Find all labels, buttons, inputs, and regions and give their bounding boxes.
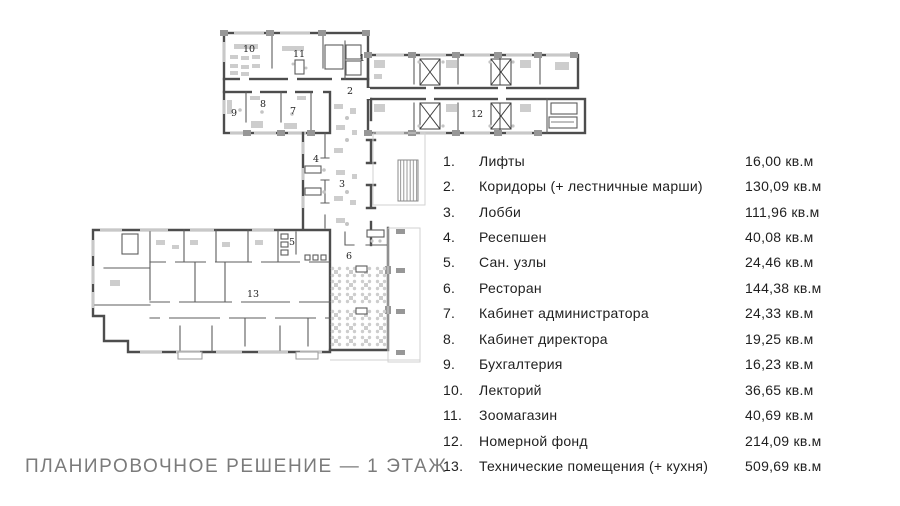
room-label-10: 10 [243,44,255,55]
page-title: ПЛАНИРОВОЧНОЕ РЕШЕНИЕ — 1 ЭТАЖ [25,456,447,478]
legend-item-number: 13. [443,458,479,474]
legend-item-area: 16,00 кв.м [745,153,843,169]
terrace [330,228,420,362]
room-label-5: 5 [289,237,295,248]
legend-item-area: 509,69 кв.м [745,458,843,474]
room-label-6: 6 [346,251,352,262]
legend-item: 2. Коридоры (+ лестничные марши) 130,09 … [443,173,843,198]
technical-block [93,230,330,359]
legend-item-area: 24,46 кв.м [745,254,843,270]
room-label-13: 13 [247,289,259,300]
legend-item-number: 4. [443,229,479,245]
legend-item: 7. Кабинет администратора 24,33 кв.м [443,301,843,326]
legend-item-label: Сан. узлы [479,254,745,270]
legend-item-area: 40,08 кв.м [745,229,843,245]
legend-item-number: 3. [443,204,479,220]
legend-item-number: 7. [443,305,479,321]
legend-item-number: 2. [443,178,479,194]
legend-item-number: 6. [443,280,479,296]
legend-item: 9. Бухгалтерия 16,23 кв.м [443,352,843,377]
restaurant-area [330,228,391,350]
legend-item-area: 36,65 кв.м [745,382,843,398]
room-label-12: 12 [471,109,483,120]
legend-item-area: 24,33 кв.м [745,305,843,321]
legend-item-area: 19,25 кв.м [745,331,843,347]
legend-item: 5. Сан. узлы 24,46 кв.м [443,250,843,275]
legend-item-area: 40,69 кв.м [745,407,843,423]
legend-item: 1. Лифты 16,00 кв.м [443,148,843,173]
legend-item-number: 1. [443,153,479,169]
room-label-9: 9 [231,108,237,119]
area-legend: 1. Лифты 16,00 кв.м 2. Коридоры (+ лестн… [443,148,843,479]
legend-item: 13. Технические помещения (+ кухня) 509,… [443,453,843,478]
legend-item-number: 8. [443,331,479,347]
legend-item-number: 9. [443,356,479,372]
legend-item-label: Ресторан [479,280,745,296]
room-label-4: 4 [313,154,319,165]
legend-item-label: Технические помещения (+ кухня) [479,458,745,474]
legend-item: 6. Ресторан 144,38 кв.м [443,275,843,300]
entrance-stair [373,133,425,205]
legend-item-label: Кабинет администратора [479,305,745,321]
legend-item-area: 144,38 кв.м [745,280,843,296]
legend-item-label: Коридоры (+ лестничные марши) [479,178,745,194]
legend-item-label: Ресепшен [479,229,745,245]
legend-item: 3. Лобби 111,96 кв.м [443,199,843,224]
legend-item: 8. Кабинет директора 19,25 кв.м [443,326,843,351]
legend-item-area: 111,96 кв.м [745,204,843,220]
room-label-8: 8 [260,99,266,110]
room-label-11: 11 [293,49,305,60]
legend-item-area: 16,23 кв.м [745,356,843,372]
legend-item: 4. Ресепшен 40,08 кв.м [443,224,843,249]
legend-item-area: 214,09 кв.м [745,433,843,449]
legend-item-number: 10. [443,382,479,398]
legend-item-number: 12. [443,433,479,449]
legend-item: 10. Лекторий 36,65 кв.м [443,377,843,402]
legend-item-label: Номерной фонд [479,433,745,449]
legend-item-label: Зоомагазин [479,407,745,423]
legend-item: 12. Номерной фонд 214,09 кв.м [443,428,843,453]
legend-item-number: 11. [443,407,479,423]
legend-item-label: Лифты [479,153,745,169]
legend-item: 11. Зоомагазин 40,69 кв.м [443,402,843,427]
room-label-2: 2 [347,86,353,97]
legend-item-label: Бухгалтерия [479,356,745,372]
legend-item-label: Лобби [479,204,745,220]
room-label-3: 3 [339,179,345,190]
legend-item-area: 130,09 кв.м [745,178,843,194]
top-left-block [220,30,370,92]
legend-item-number: 5. [443,254,479,270]
legend-item-label: Кабинет директора [479,331,745,347]
hotel-wing [364,52,585,136]
room-label-7: 7 [290,106,296,117]
legend-item-label: Лекторий [479,382,745,398]
offices-block [224,90,330,136]
room-label-1: 1 [359,53,365,64]
